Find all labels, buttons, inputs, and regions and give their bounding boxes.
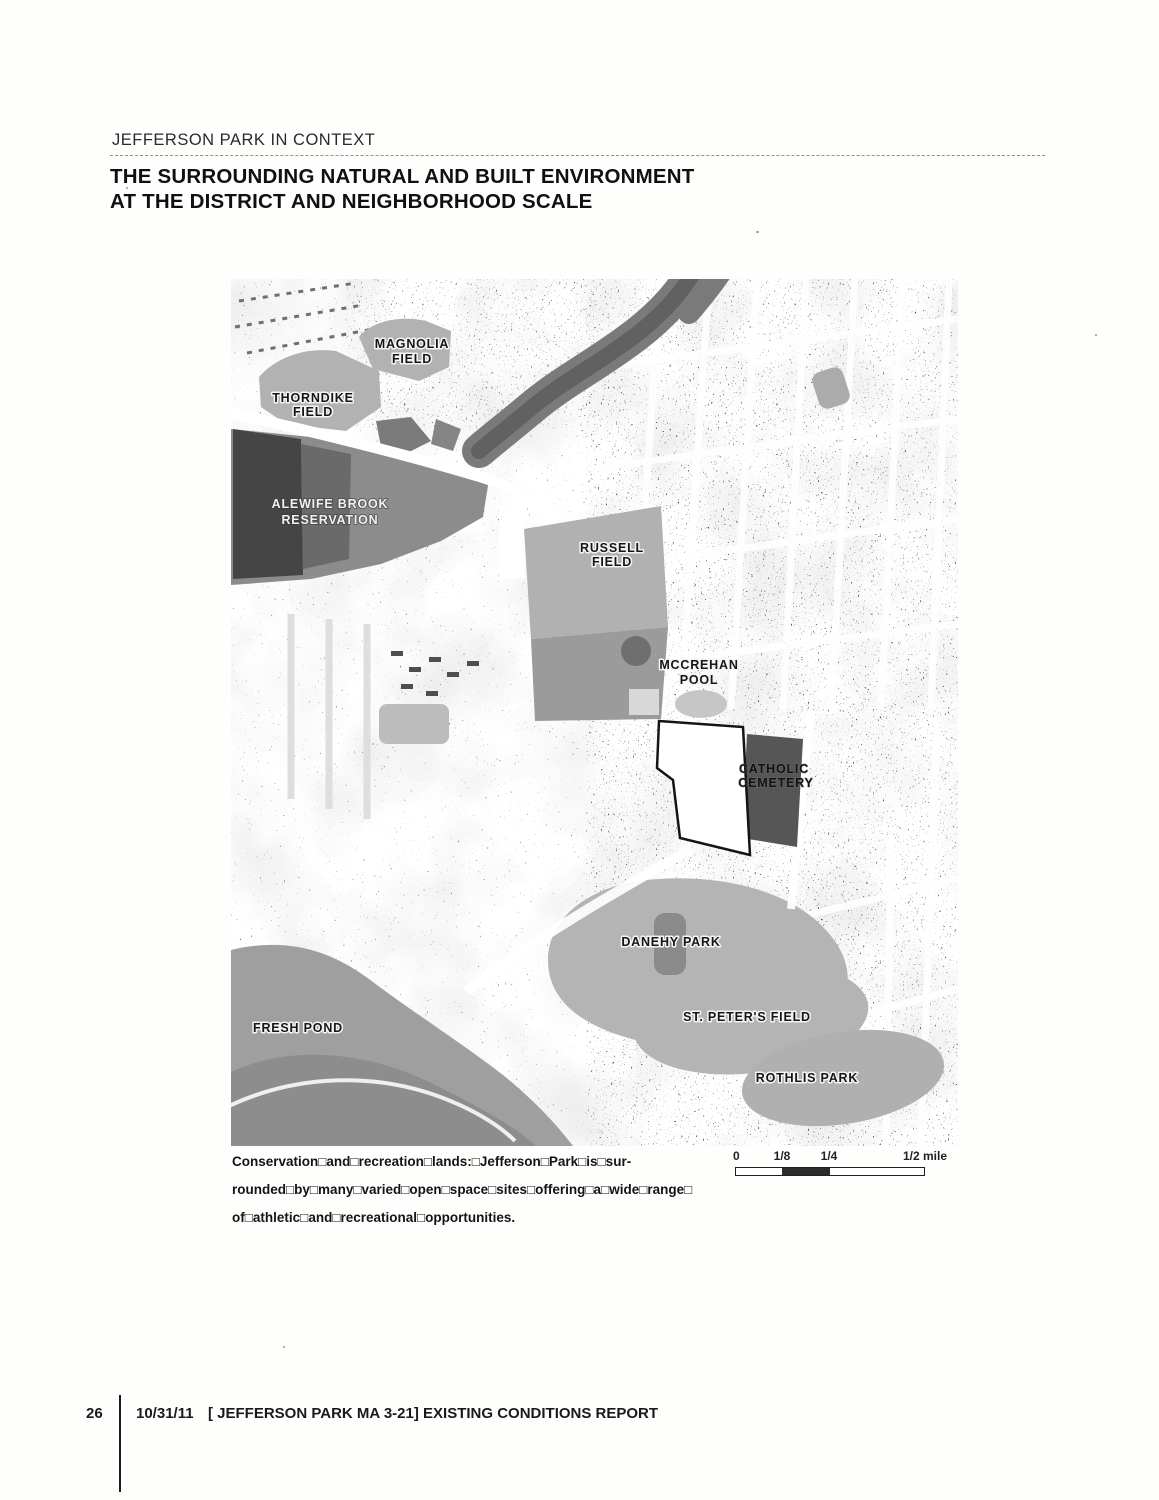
footer-report-title: [ JEFFERSON PARK MA 3-21] EXISTING CONDI… — [208, 1405, 658, 1422]
scan-speck — [1095, 334, 1097, 336]
report-page: JEFFERSON PARK IN CONTEXT THE SURROUNDIN… — [0, 0, 1159, 1500]
scan-speck — [756, 231, 759, 233]
footer-date: 10/31/11 — [136, 1405, 194, 1422]
footer-divider — [119, 1395, 121, 1492]
page-number: 26 — [86, 1405, 103, 1422]
scan-speck — [126, 187, 128, 189]
scan-speck — [283, 1346, 285, 1348]
page-footer: 26 10/31/11 [ JEFFERSON PARK MA 3-21] EX… — [0, 0, 1159, 1500]
